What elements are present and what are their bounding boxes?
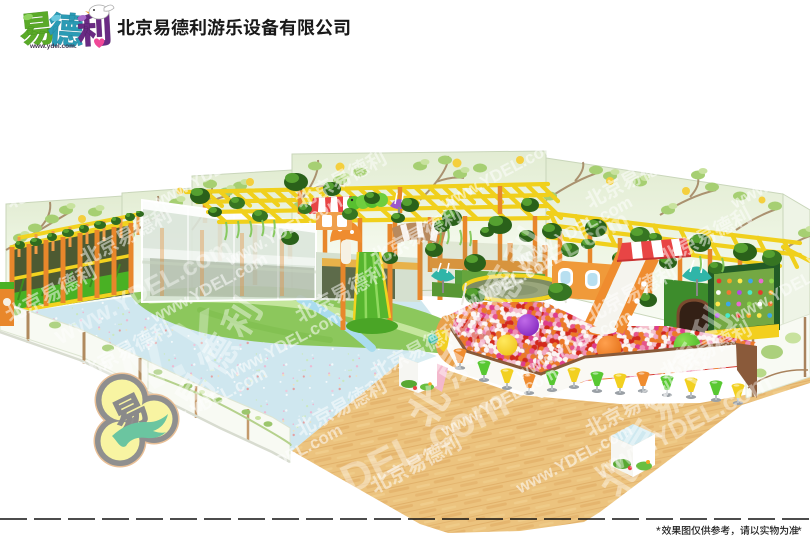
svg-text:*: * [656, 524, 661, 538]
svg-text:*: * [797, 524, 802, 538]
svg-text:www.ydel.com.: www.ydel.com. [29, 43, 77, 50]
